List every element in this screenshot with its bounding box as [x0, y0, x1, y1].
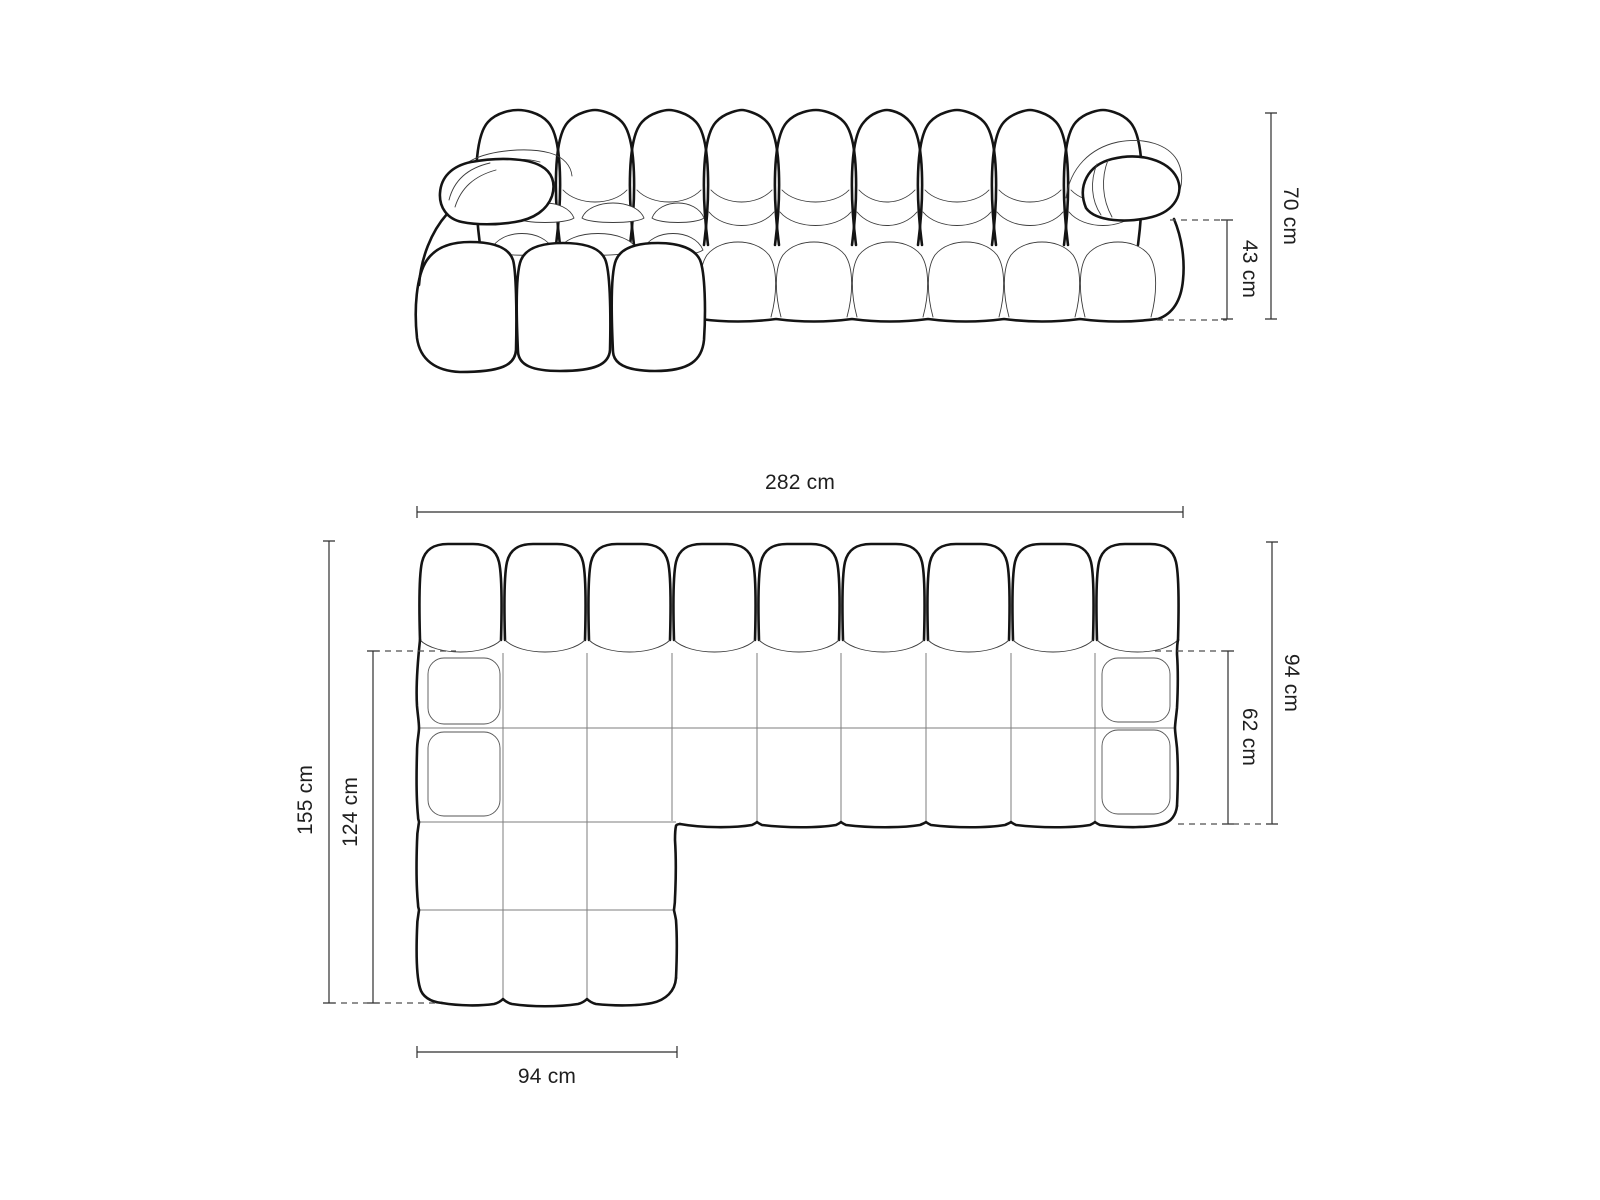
- dim-label-side-depth: 94 cm: [1279, 654, 1303, 712]
- dim-label-seat-depth: 62 cm: [1237, 708, 1261, 766]
- dim-label-seat-height: 43 cm: [1237, 240, 1261, 298]
- dim-label-total-depth: 155 cm: [294, 765, 318, 835]
- dim-label-total-width: 282 cm: [765, 471, 835, 495]
- dim-label-total-height: 70 cm: [1278, 187, 1302, 245]
- dim-label-chaise-width: 94 cm: [518, 1065, 576, 1089]
- diagram-linework: [0, 0, 1600, 1200]
- dim-label-chaise-depth: 124 cm: [339, 777, 363, 847]
- sofa-dimension-diagram: 70 cm 43 cm 282 cm 155 cm 124 cm 94 cm 9…: [0, 0, 1600, 1200]
- top-plan-drawing: [417, 544, 1179, 1006]
- front-elevation-drawing: [416, 110, 1184, 372]
